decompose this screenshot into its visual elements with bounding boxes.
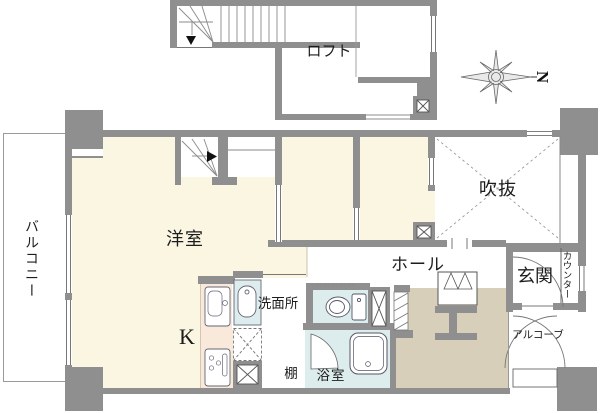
kitchen-floor (200, 278, 235, 390)
floor-plan: N ロフト 吹抜 洋室 K バルコニー ホール 玄関 カウンター アルコーブ 洗… (0, 0, 600, 413)
western-room-label: 洋室 (142, 230, 228, 248)
wall-segment (553, 303, 578, 310)
entrance-partition (449, 313, 457, 333)
entrance-partition (435, 333, 477, 340)
wall-segment (275, 137, 282, 185)
wall-segment (506, 243, 586, 252)
wall-segment (275, 114, 437, 120)
closet-hatch (394, 292, 408, 330)
entrance-step (513, 369, 557, 387)
wall-segment (233, 271, 263, 278)
column-vent-slot (72, 149, 103, 156)
wall-segment (430, 0, 437, 120)
compass-icon: N (461, 50, 552, 104)
kitchen-label: K (172, 326, 202, 348)
wall-segment (394, 285, 410, 292)
wall-segment (65, 137, 72, 215)
shelf-label: 棚 (277, 367, 305, 381)
wall-segment (170, 0, 437, 6)
void-label: 吹抜 (455, 180, 541, 198)
wall-segment (513, 303, 522, 310)
balcony-label: バルコニー (23, 196, 37, 321)
corner-column (65, 367, 103, 411)
wall-segment (303, 323, 396, 330)
wall-segment (578, 291, 586, 312)
wall-segment (428, 185, 435, 191)
washroom-label: 洗面所 (246, 297, 310, 311)
loft-label: ロフト (299, 45, 359, 60)
wall-segment (65, 388, 510, 394)
wall-segment (65, 293, 72, 300)
wall-segment (392, 330, 413, 338)
wall-segment (428, 133, 435, 158)
corner-column (557, 367, 597, 411)
wall-segment (358, 77, 420, 83)
hall-label: ホール (375, 256, 461, 273)
entrance-tan-floor-2 (396, 337, 408, 388)
wall-segment (353, 133, 360, 208)
corner-column (560, 108, 598, 155)
stairs-nook-wall (175, 137, 181, 185)
wall-segment (65, 130, 527, 137)
laundry-floor (233, 328, 262, 388)
bathroom-label: 浴室 (303, 369, 359, 383)
alcove-label: アルコーブ (510, 331, 566, 342)
stairs-down-arrow (186, 36, 196, 45)
wall-segment (198, 276, 235, 284)
wall-segment (417, 77, 432, 98)
counter-label: カウンター (560, 246, 570, 304)
wall-segment (268, 240, 506, 247)
wall-segment (170, 0, 177, 48)
wall-segment (275, 42, 282, 120)
wall-segment (390, 330, 396, 388)
stairs-nook-wall (212, 177, 237, 185)
entrance-label: 玄関 (503, 267, 567, 285)
entrance-partition (435, 306, 477, 313)
wall-segment (306, 283, 370, 290)
compass-north-label: N (533, 71, 552, 84)
